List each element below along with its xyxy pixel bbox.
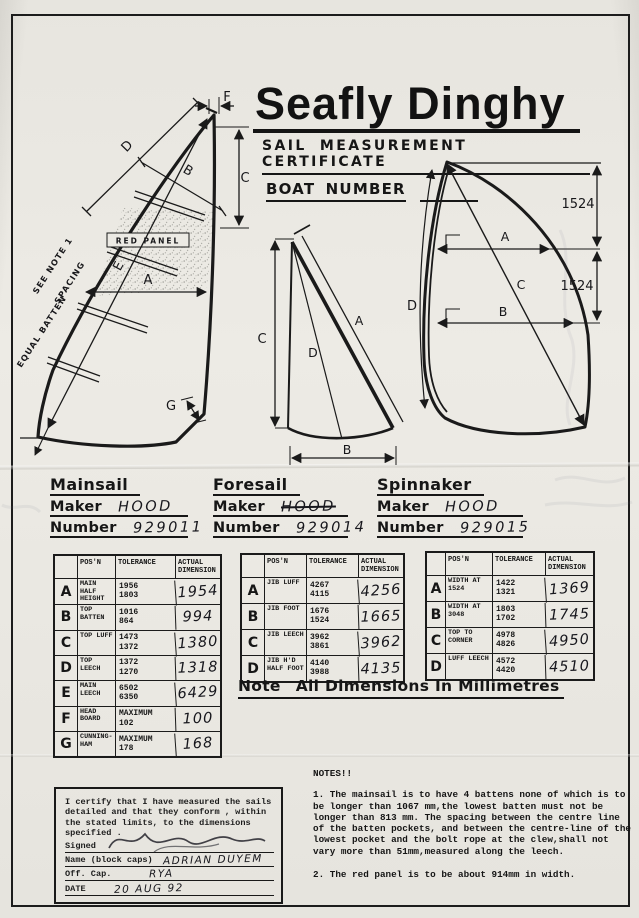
- foresail-section-label: Foresail: [213, 476, 300, 496]
- mainsail-table: POS'N TOLERANCE ACTUAL DIMENSION A MAIN …: [53, 554, 222, 758]
- maker-label: Maker: [377, 499, 429, 515]
- spinnaker-dim-label-c: C: [517, 277, 526, 292]
- signed-label: Signed: [65, 841, 96, 851]
- foresail-table: POS'N TOLERANCE ACTUAL DIMENSION A JIB L…: [240, 553, 405, 683]
- row-tolerance: 1473 1372: [115, 631, 175, 655]
- row-position: HEAD BOARD: [77, 707, 115, 731]
- row-actual-dimension: 4256: [357, 576, 404, 604]
- certification-statement: I certify that I have measured the sails…: [65, 797, 274, 839]
- name-row: Name (block caps) ADRIAN DUYEM: [65, 853, 274, 867]
- table-row: C TOP LUFF 1473 1372 1380: [55, 630, 220, 655]
- spinnaker-lower-span-value: 1524: [560, 279, 593, 294]
- row-position: TOP LUFF: [77, 631, 115, 655]
- row-key: C: [427, 628, 445, 653]
- red-panel-label: RED PANEL: [116, 237, 181, 246]
- row-tolerance: 1422 1321: [492, 576, 545, 601]
- mainsail-dim-label-g: G: [166, 399, 176, 414]
- row-tolerance: 1372 1270: [115, 656, 175, 680]
- units-note-text: All Dimensions In Millimetres: [296, 678, 560, 695]
- row-key: B: [242, 604, 264, 629]
- row-key: B: [55, 605, 77, 629]
- row-tolerance: 1676 1524: [306, 604, 358, 629]
- table-row: E MAIN LEECH 6502 6350 6429: [55, 680, 220, 705]
- spinnaker-dim-label-d: D: [407, 299, 417, 314]
- key-column-header: [55, 556, 77, 578]
- headboard: [206, 108, 217, 113]
- units-note: Note All Dimensions In Millimetres: [238, 678, 564, 699]
- table-row: B WIDTH AT 3048 1803 1702 1745: [427, 601, 593, 627]
- dim-line-d: [292, 242, 342, 439]
- foresail-id-section: Foresail Maker HOOD Number 929014: [213, 476, 348, 538]
- row-key: A: [427, 576, 445, 601]
- spinnaker-table-header: POS'N TOLERANCE ACTUAL DIMENSION: [427, 553, 593, 575]
- number-label: Number: [377, 520, 444, 536]
- foresail-dim-label-c: C: [257, 332, 266, 347]
- posn-column-header: POS'N: [264, 555, 306, 577]
- tolerance-column-header: TOLERANCE: [306, 555, 358, 577]
- table-row: A MAIN HALF HEIGHT 1956 1803 1954: [55, 579, 220, 604]
- boat-number-label: BOAT NUMBER: [266, 181, 406, 202]
- tolerance-column-header: TOLERANCE: [492, 553, 545, 575]
- dim-line-g: [181, 397, 206, 423]
- mainsail-dim-label-d: D: [119, 138, 137, 156]
- foresail-dim-label-b: B: [343, 442, 352, 457]
- row-actual-dimension: 1318: [175, 655, 221, 681]
- row-key: B: [427, 602, 445, 627]
- mainsail-dim-label-c: C: [240, 171, 249, 186]
- spinnaker-id-section: Spinnaker Maker HOOD Number 929015: [377, 476, 523, 538]
- row-tolerance: 3962 3861: [306, 630, 358, 655]
- row-key: C: [242, 630, 264, 655]
- name-label: Name (block caps): [65, 855, 153, 865]
- row-position: JIB LEECH: [264, 630, 306, 655]
- table-row: D LUFF LEECH 4572 4420 4510: [427, 653, 593, 679]
- posn-column-header: POS'N: [445, 553, 492, 575]
- date-label: DATE: [65, 884, 86, 894]
- number-label: Number: [213, 520, 280, 536]
- number-label: Number: [50, 520, 117, 536]
- actual-column-header: ACTUAL DIMENSION: [358, 555, 403, 577]
- row-tolerance: MAXIMUM 102: [115, 707, 175, 731]
- page-title: Seafly Dinghy: [253, 80, 580, 133]
- row-position: JIB FOOT: [264, 604, 306, 629]
- row-key: D: [427, 654, 445, 679]
- spinnaker-maker-value: HOOD: [445, 499, 500, 516]
- row-key: E: [55, 681, 77, 705]
- row-actual-dimension: 100: [175, 706, 221, 732]
- spinnaker-dim-label-a: A: [501, 229, 510, 244]
- signed-row: Signed: [65, 839, 274, 853]
- row-tolerance: 1803 1702: [492, 602, 545, 627]
- mainsail-dim-label-b: B: [180, 162, 195, 179]
- units-note-prefix: Note: [238, 678, 281, 695]
- posn-column-header: POS'N: [77, 556, 115, 578]
- table-row: C JIB LEECH 3962 3861 3962: [242, 629, 403, 655]
- note-1: 1. The mainsail is to have 4 battens non…: [313, 789, 631, 857]
- certification-box: I certify that I have measured the sails…: [54, 787, 283, 904]
- foresail-parallel-line: [302, 236, 403, 422]
- dim-line-d: [82, 98, 202, 216]
- key-column-header: [427, 553, 445, 575]
- row-actual-dimension: 1665: [358, 603, 404, 630]
- row-tolerance: 1956 1803: [115, 579, 175, 604]
- spinnaker-section-label: Spinnaker: [377, 476, 484, 496]
- maker-label: Maker: [50, 499, 102, 515]
- row-position: TOP LEECH: [77, 656, 115, 680]
- notes-block: NOTES!! 1. The mainsail is to have 4 bat…: [313, 768, 631, 892]
- tolerance-column-header: TOLERANCE: [115, 556, 175, 578]
- row-actual-dimension: 168: [174, 731, 221, 758]
- mainsail-table-header: POS'N TOLERANCE ACTUAL DIMENSION: [55, 556, 220, 578]
- row-position: TOP BATTEN: [77, 605, 115, 629]
- spinnaker-number-value: 929015: [460, 519, 531, 536]
- foresail-maker-value: HOOD: [281, 499, 336, 516]
- row-tolerance: 6502 6350: [115, 681, 175, 705]
- mainsail-number-row: Number 929011: [50, 517, 188, 538]
- date-row: DATE 20 AUG 92: [65, 881, 274, 896]
- actual-column-header: ACTUAL DIMENSION: [175, 556, 220, 578]
- name-value: ADRIAN DUYEM: [163, 854, 263, 867]
- spinnaker-dim-label-b: B: [499, 304, 508, 319]
- table-row: B TOP BATTEN 1016 864 994: [55, 604, 220, 629]
- row-actual-dimension: 4950: [544, 626, 594, 654]
- row-actual-dimension: 1369: [544, 574, 594, 602]
- spinnaker-number-row: Number 929015: [377, 517, 523, 538]
- spinnaker-luff-inner: [429, 168, 449, 412]
- foresail-leech: [292, 242, 393, 428]
- table-row: B JIB FOOT 1676 1524 1665: [242, 603, 403, 629]
- foresail-number-value: 929014: [296, 519, 367, 536]
- foresail-maker-row: Maker HOOD: [213, 496, 348, 517]
- right-angle-mark: [446, 309, 460, 322]
- row-key: C: [55, 631, 77, 655]
- sail-certificate-document: Seafly Dinghy SAIL MEASUREMENT CERTIFICA…: [0, 0, 639, 918]
- row-tolerance: 4978 4826: [492, 628, 545, 653]
- row-position: JIB LUFF: [264, 578, 306, 603]
- mainsail-maker-row: Maker HOOD: [50, 496, 188, 517]
- off-cap-row: Off. Cap. RYA: [65, 867, 274, 881]
- row-key: D: [55, 656, 77, 680]
- foresail-luff-edge: [288, 242, 292, 428]
- row-position: WIDTH AT 3048: [445, 602, 492, 627]
- row-tolerance: 4267 4115: [306, 578, 358, 603]
- row-actual-dimension: 1380: [174, 629, 221, 656]
- mainsail-section-label: Mainsail: [50, 476, 140, 496]
- row-position: LUFF LEECH: [445, 654, 492, 679]
- row-actual-dimension: 994: [175, 604, 221, 630]
- table-row: A WIDTH AT 1524 1422 1321 1369: [427, 576, 593, 601]
- mainsail-maker-value: HOOD: [118, 499, 173, 516]
- mainsail-dim-label-a: A: [144, 273, 153, 288]
- spinnaker-table: POS'N TOLERANCE ACTUAL DIMENSION A WIDTH…: [425, 551, 595, 681]
- off-cap-label: Off. Cap.: [65, 869, 111, 879]
- spinnaker-upper-span-value: 1524: [561, 197, 594, 212]
- row-position: MAIN LEECH: [77, 681, 115, 705]
- foresail-table-header: POS'N TOLERANCE ACTUAL DIMENSION: [242, 555, 403, 577]
- row-tolerance: 4572 4420: [492, 654, 545, 679]
- row-position: WIDTH AT 1524: [445, 576, 492, 601]
- row-key: G: [55, 732, 77, 756]
- row-tolerance: 1016 864: [115, 605, 175, 629]
- maker-label: Maker: [213, 499, 265, 515]
- mainsail-dim-label-f: F: [223, 90, 230, 105]
- table-row: A JIB LUFF 4267 4115 4256: [242, 578, 403, 603]
- spinnaker-maker-row: Maker HOOD: [377, 496, 523, 517]
- row-key: A: [55, 579, 77, 604]
- row-actual-dimension: 4510: [545, 653, 594, 680]
- key-column-header: [242, 555, 264, 577]
- row-actual-dimension: 3962: [357, 628, 404, 656]
- head-tick: [294, 225, 310, 234]
- foresail-number-row: Number 929014: [213, 517, 348, 538]
- mainsail-diagram: F D B C E A G RED PANEL SEE NOTE 1 SPACI…: [8, 70, 253, 468]
- table-row: F HEAD BOARD MAXIMUM 102 100: [55, 706, 220, 731]
- row-key: A: [242, 578, 264, 603]
- date-value: 20 AUG 92: [114, 883, 184, 895]
- row-position: CUNNING-HAM: [77, 732, 115, 756]
- table-row: D TOP LEECH 1372 1270 1318: [55, 655, 220, 680]
- row-position: TOP TO CORNER: [445, 628, 492, 653]
- row-key: F: [55, 707, 77, 731]
- spinnaker-diagram: A B C D 1524 1524: [403, 158, 639, 470]
- table-row: G CUNNING-HAM MAXIMUM 178 168: [55, 731, 220, 756]
- foresail-dim-label-d: D: [308, 345, 318, 360]
- row-actual-dimension: 6429: [174, 680, 221, 707]
- notes-heading: NOTES!!: [313, 768, 631, 779]
- row-actual-dimension: 1954: [174, 577, 221, 605]
- foresail-dim-label-a: A: [355, 313, 364, 328]
- mainsail-number-value: 929011: [133, 519, 204, 536]
- row-tolerance: MAXIMUM 178: [115, 732, 175, 756]
- off-cap-value: RYA: [149, 869, 174, 880]
- table-row: C TOP TO CORNER 4978 4826 4950: [427, 627, 593, 653]
- actual-column-header: ACTUAL DIMENSION: [545, 553, 593, 575]
- mainsail-id-section: Mainsail Maker HOOD Number 929011: [50, 476, 188, 538]
- row-position: MAIN HALF HEIGHT: [77, 579, 115, 604]
- row-actual-dimension: 1745: [545, 601, 594, 628]
- note-2: 2. The red panel is to be about 914mm in…: [313, 869, 631, 880]
- right-angle-mark: [446, 235, 460, 248]
